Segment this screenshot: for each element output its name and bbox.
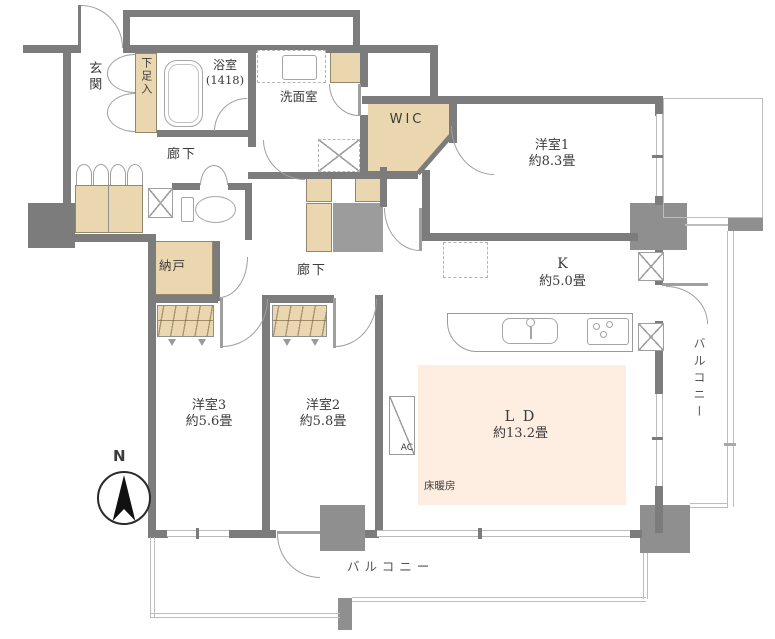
wall-segment bbox=[422, 170, 430, 240]
ac-unit: AC bbox=[389, 396, 415, 455]
kitchen-size: 約5.0畳 bbox=[539, 274, 586, 289]
balcony-right-label: バルコニー bbox=[691, 337, 706, 422]
storage-door-arc bbox=[219, 257, 248, 298]
balcony-bottom-left-rail bbox=[150, 537, 155, 617]
wall-segment bbox=[655, 352, 663, 394]
wall-segment bbox=[375, 295, 383, 537]
balcony-rail-joint bbox=[690, 503, 728, 508]
floor-heating-label: 床暖房 bbox=[424, 480, 456, 493]
wall-segment bbox=[630, 530, 642, 538]
wall-segment bbox=[63, 234, 155, 242]
storage-label: 納戸 bbox=[159, 258, 186, 274]
wall-segment bbox=[360, 171, 418, 179]
bath-size: (1418) bbox=[206, 73, 244, 87]
bedroom3-name: 洋室3 bbox=[192, 398, 226, 413]
hallway-ld-door-arc bbox=[384, 208, 420, 251]
window-mullion bbox=[196, 528, 199, 539]
wic-label: WIC bbox=[368, 112, 446, 128]
wall-segment bbox=[262, 295, 270, 537]
wall-segment bbox=[157, 130, 256, 137]
bedroom1-door-arc bbox=[451, 126, 494, 175]
wall-segment bbox=[362, 96, 663, 104]
window bbox=[482, 530, 630, 537]
living-dining-label: L D 約13.2畳 bbox=[453, 408, 588, 443]
wall-segment bbox=[123, 10, 360, 17]
wall-segment bbox=[655, 196, 663, 205]
pillar-bottom-right bbox=[640, 505, 690, 553]
bedroom3-closet bbox=[157, 305, 214, 337]
closet-folding-door bbox=[110, 164, 126, 185]
toilet-tank-icon bbox=[181, 197, 194, 222]
vanity-sink-icon bbox=[282, 55, 317, 80]
balcony-rail-tick bbox=[685, 224, 728, 226]
hall-closet-divider bbox=[108, 186, 109, 232]
wall-segment bbox=[248, 137, 256, 147]
wic-door-arc bbox=[329, 84, 359, 116]
pipe-shaft-icon bbox=[638, 252, 664, 281]
faucet-icon bbox=[526, 318, 535, 327]
window-mullion bbox=[652, 155, 663, 158]
washroom-label: 洗面室 bbox=[280, 89, 318, 105]
toilet-folding-door bbox=[214, 165, 228, 185]
balcony-step-block bbox=[338, 598, 352, 630]
closet-door-tick bbox=[283, 339, 291, 346]
living-dining-size: 約13.2畳 bbox=[493, 426, 548, 441]
bath-name: 浴室 bbox=[213, 58, 237, 72]
washroom-cabinet bbox=[330, 50, 362, 83]
wall-segment bbox=[655, 486, 663, 533]
bedroom2-name: 洋室2 bbox=[306, 398, 340, 413]
wall-segment bbox=[148, 295, 218, 303]
closet-folding-door bbox=[76, 164, 92, 185]
closet-door-tick bbox=[168, 339, 176, 346]
shoebox-label: 下足入 bbox=[139, 57, 153, 96]
closet-folding-door bbox=[93, 164, 109, 185]
bedroom3-size: 約5.6畳 bbox=[186, 414, 233, 429]
wall-segment bbox=[172, 183, 200, 190]
bedroom2-closet bbox=[272, 305, 327, 337]
stove-burner-icon bbox=[606, 321, 613, 328]
compass-icon bbox=[97, 471, 151, 525]
balcony-bottom-rail-b bbox=[352, 597, 646, 602]
balcony-partition bbox=[728, 217, 763, 231]
balcony-right-rail bbox=[727, 231, 734, 507]
duct-block bbox=[333, 203, 383, 252]
hallway-upper-label: 廊下 bbox=[167, 147, 197, 163]
kitchen-name: K bbox=[557, 256, 567, 272]
bath-door-arc bbox=[214, 98, 247, 131]
toilet-folding-door bbox=[200, 165, 214, 185]
closet-door-tick bbox=[311, 339, 319, 346]
washer-pan-icon bbox=[318, 139, 360, 172]
hallway-mid-label: 廊下 bbox=[297, 263, 327, 279]
pipe-shaft-icon bbox=[638, 323, 664, 351]
entrance-door-arc bbox=[81, 5, 123, 48]
wall-segment bbox=[229, 530, 276, 538]
wall-segment bbox=[360, 45, 368, 87]
utility-shelf-b bbox=[355, 178, 382, 202]
window bbox=[656, 394, 663, 486]
window-mullion bbox=[652, 437, 663, 440]
wall-segment bbox=[245, 183, 252, 240]
faucet-stem bbox=[530, 327, 532, 339]
utility-shelf-a bbox=[306, 178, 332, 202]
floor-plan: AC N 玄関 下足入 浴室 (1418) 洗面室 WIC 廊下 廊下 納戸 洋… bbox=[0, 0, 775, 639]
living-dining-name: L D bbox=[505, 409, 537, 425]
pipe-shaft-icon bbox=[148, 188, 173, 218]
bedroom2-balcony-door-arc bbox=[277, 534, 320, 578]
shoe-cabinet-door-arc bbox=[107, 54, 135, 93]
bedroom2-door-arc bbox=[335, 299, 377, 347]
wall-segment bbox=[270, 295, 334, 303]
balcony-bottom-right-rail bbox=[643, 553, 648, 599]
wall-segment bbox=[380, 167, 387, 207]
wall-segment bbox=[422, 233, 638, 241]
pillar-bottom-mid bbox=[320, 505, 365, 551]
bedroom1-label: 洋室1 約8.3畳 bbox=[497, 138, 607, 171]
compass-north-label: N bbox=[113, 447, 126, 466]
window bbox=[377, 530, 478, 537]
refrigerator-space bbox=[443, 242, 488, 278]
wall-segment bbox=[655, 96, 663, 116]
stove-burner-icon bbox=[593, 323, 600, 330]
wall-segment bbox=[360, 115, 368, 179]
hall-closet bbox=[75, 185, 143, 233]
ac-label: AC bbox=[401, 443, 413, 454]
kitchen-balcony-door-arc bbox=[666, 286, 708, 324]
shoe-cabinet-door-arc bbox=[107, 93, 135, 132]
bedroom2-size: 約5.8畳 bbox=[300, 414, 347, 429]
bedroom1-size: 約8.3畳 bbox=[529, 154, 576, 169]
genkan-label: 玄関 bbox=[85, 61, 101, 93]
upper-balcony-outline bbox=[663, 98, 763, 218]
toilet-bowl-icon bbox=[195, 196, 236, 223]
compass-needle bbox=[109, 475, 139, 521]
bath-label: 浴室 (1418) bbox=[196, 58, 254, 88]
stove-burner-icon bbox=[600, 331, 607, 338]
bedroom1-name: 洋室1 bbox=[535, 138, 569, 153]
bedroom3-label: 洋室3 約5.6畳 bbox=[155, 398, 263, 431]
closet-folding-door bbox=[127, 164, 143, 185]
utility-shelf-c bbox=[306, 203, 332, 252]
balcony-rail-tick bbox=[724, 443, 736, 446]
bedroom2-label: 洋室2 約5.8畳 bbox=[270, 398, 376, 431]
kitchen-label: K 約5.0畳 bbox=[515, 256, 610, 290]
balcony-bottom-rail-a bbox=[150, 613, 340, 618]
closet-door-tick bbox=[198, 339, 206, 346]
balcony-bottom-label: バルコニー bbox=[347, 559, 434, 575]
